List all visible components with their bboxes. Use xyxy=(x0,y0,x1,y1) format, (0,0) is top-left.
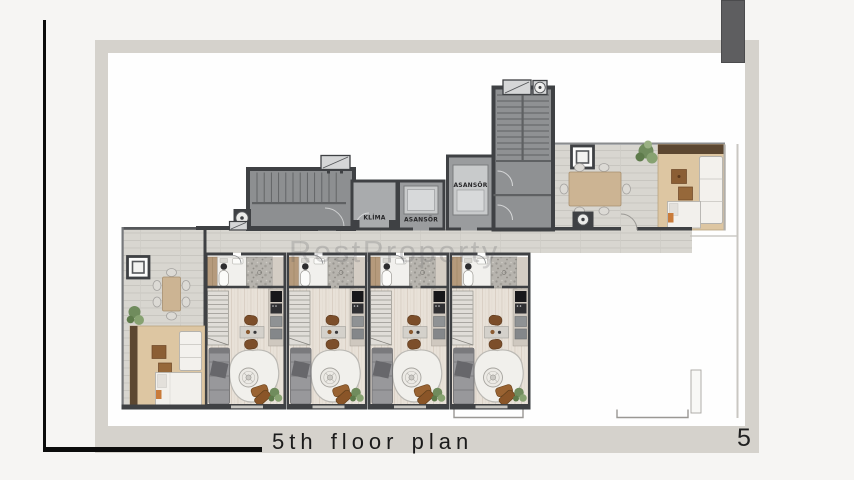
left-frame-line xyxy=(43,20,46,452)
plan-paper xyxy=(108,53,745,426)
plan-frame xyxy=(95,40,759,453)
bottom-frame-line xyxy=(43,447,262,452)
page-number: 5 xyxy=(737,424,751,453)
slide-caption: 5th floor plan xyxy=(272,429,473,455)
accent-bar xyxy=(721,0,745,63)
slide-canvas: KLİMA ASANSÖR ASANSÖR xyxy=(0,0,854,480)
